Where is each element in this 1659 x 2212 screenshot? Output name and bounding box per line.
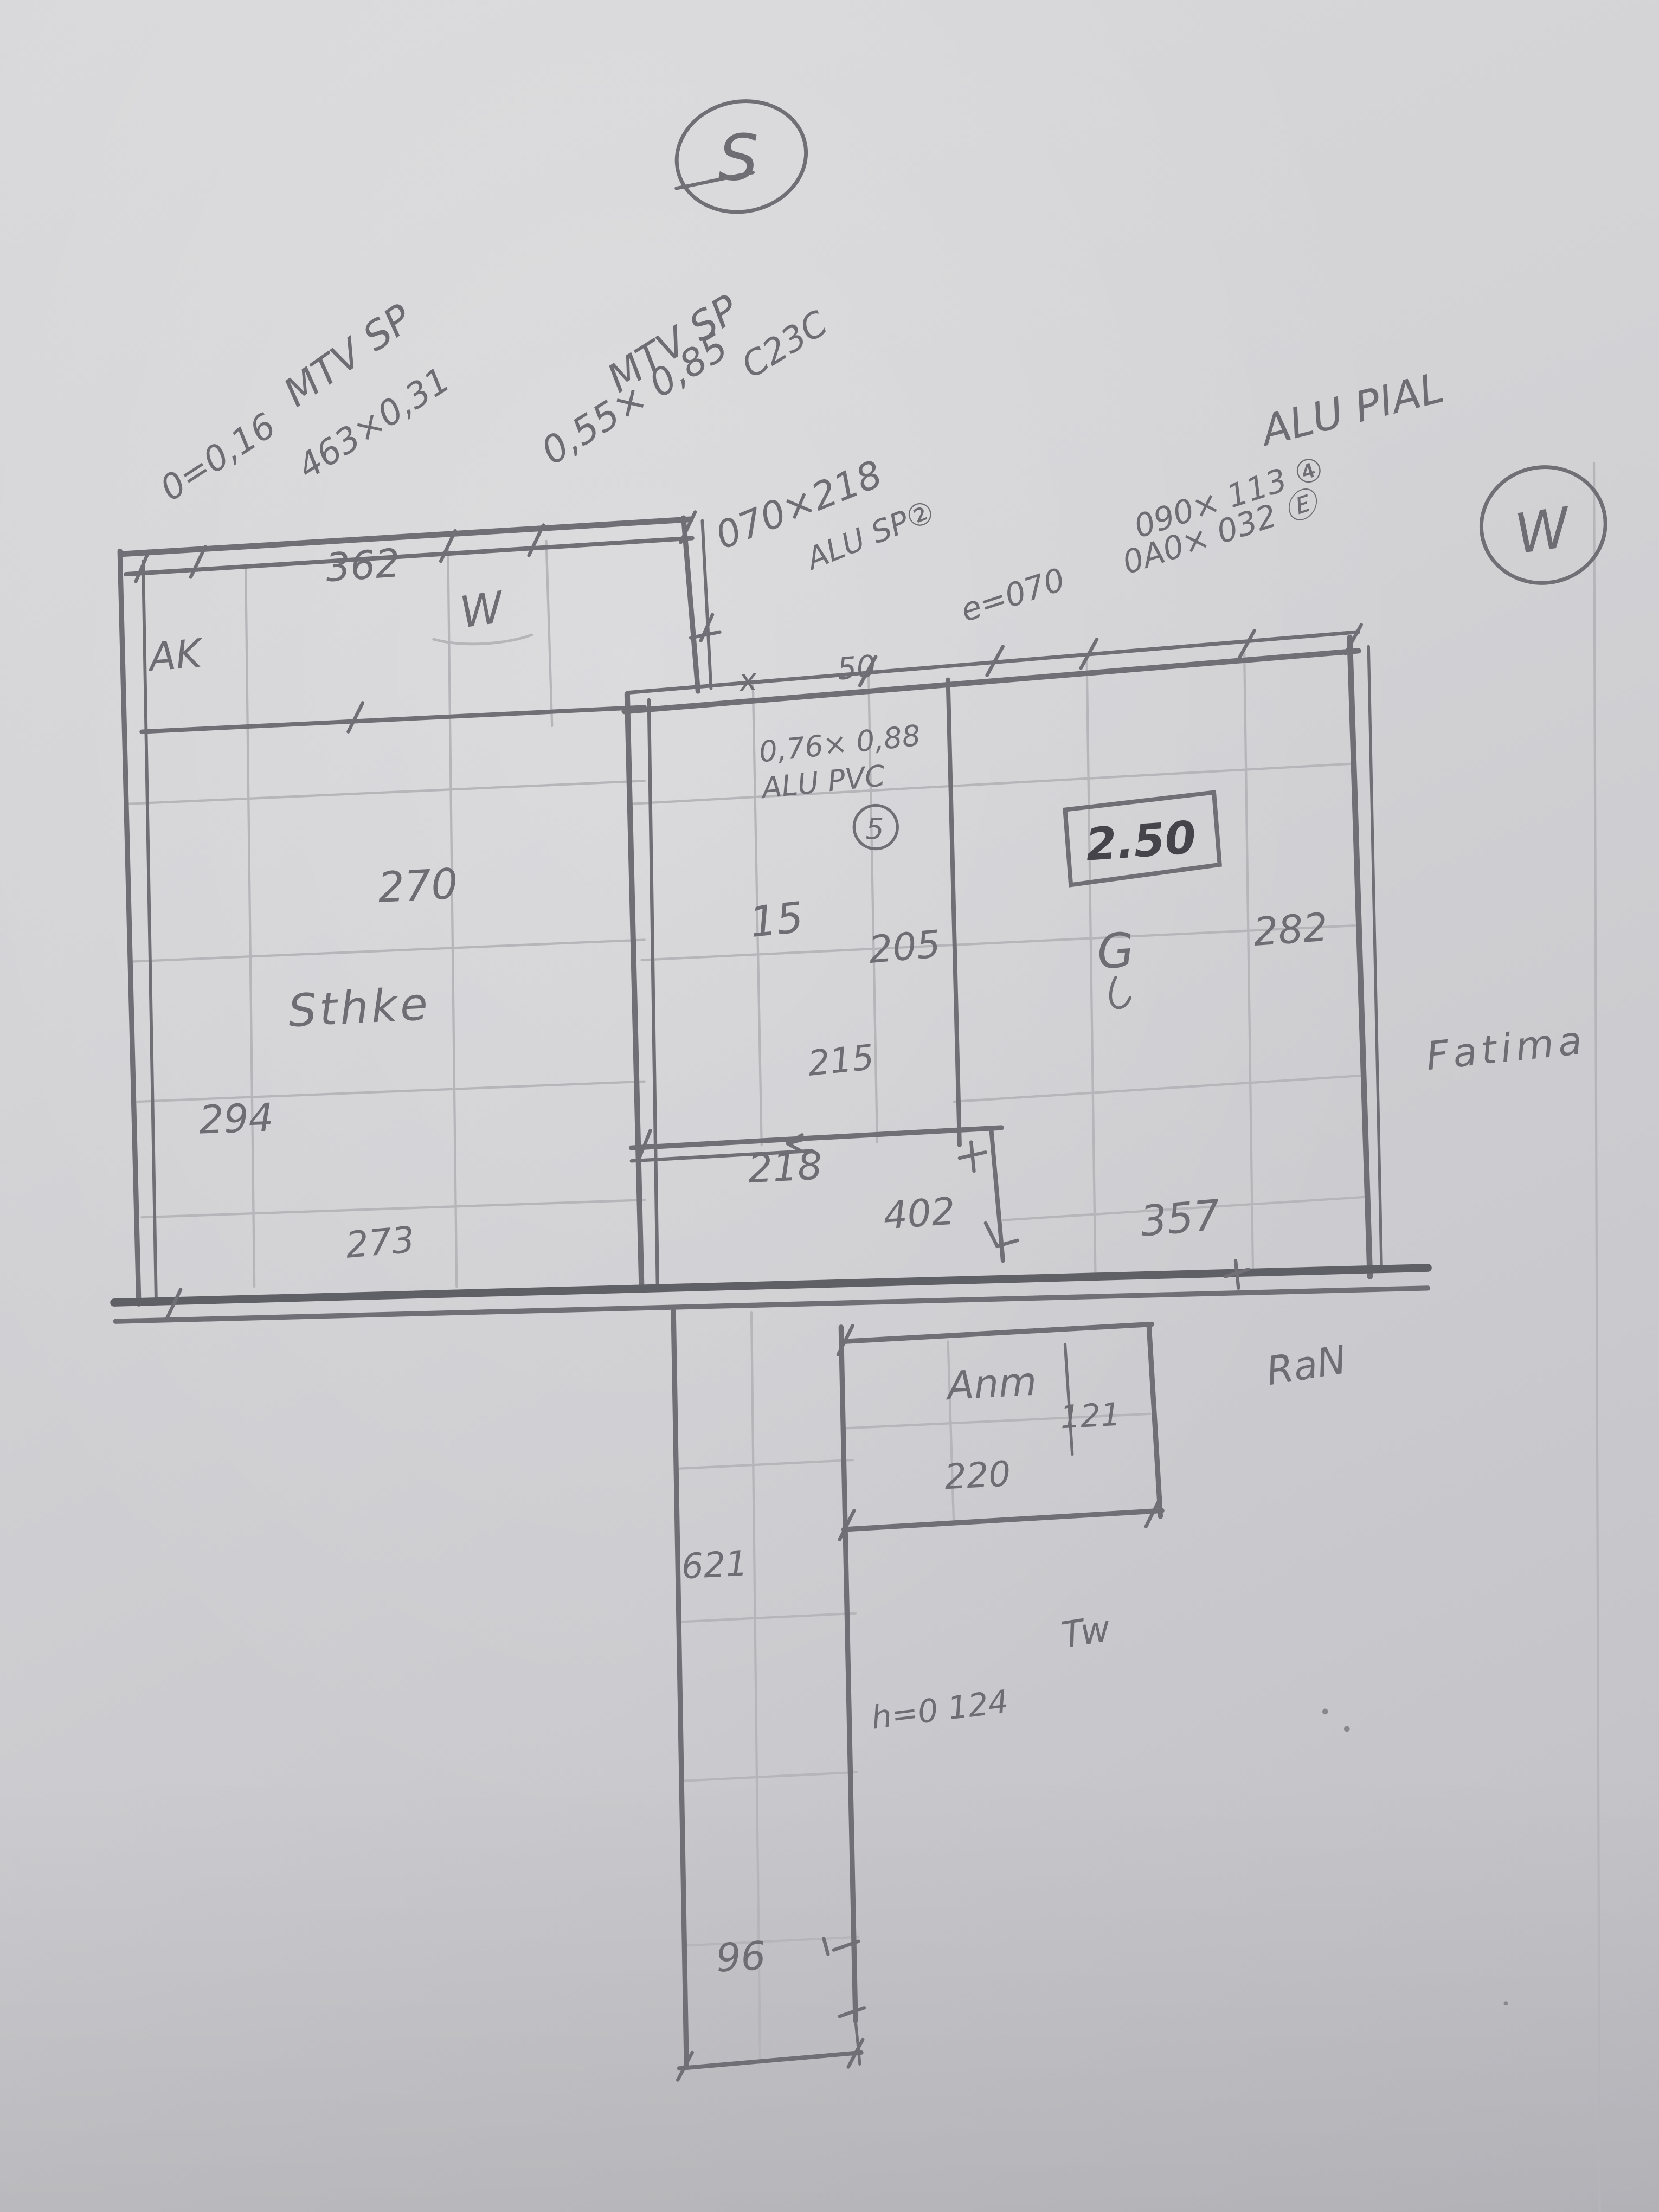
paper-specks	[1322, 1709, 1508, 2006]
dim-621: 621	[680, 1544, 749, 1587]
dim-121: 121	[1059, 1396, 1122, 1436]
dim-205: 205	[867, 923, 942, 972]
dim-402: 402	[882, 1189, 957, 1238]
height-value: 2.50	[1084, 812, 1198, 871]
name-ran: RaN	[1263, 1336, 1349, 1394]
dim-273: 273	[344, 1218, 416, 1266]
spec5-number: 5	[866, 812, 884, 846]
compass-south: S	[666, 89, 816, 224]
room-anm-label: Anm	[944, 1359, 1038, 1409]
dim-362: 362	[324, 540, 402, 590]
dim-220: 220	[943, 1454, 1012, 1497]
floorplan-sketch: S W MTV SP 0=0,16 463×0,31 MTV SP C23C 0…	[0, 0, 1659, 2212]
mark-x: x	[736, 662, 759, 699]
name-fatima: Fatima	[1424, 1017, 1589, 1079]
photo-of-sketch: S W MTV SP 0=0,16 463×0,31 MTV SP C23C 0…	[0, 0, 1659, 2212]
mark-50: 50	[836, 649, 878, 687]
room-ak-label: AK	[145, 630, 205, 680]
dim-357: 357	[1139, 1191, 1223, 1246]
spec4-title: ALU PIAL	[1254, 363, 1449, 456]
compass-south-letter: S	[718, 120, 758, 195]
dim-96: 96	[715, 1933, 767, 1981]
height-box: 2.50	[1065, 793, 1219, 885]
dim-270: 270	[377, 860, 459, 913]
spec1-line1: 0=0,16	[153, 406, 283, 509]
mark-g: G	[1095, 922, 1136, 980]
dim-282: 282	[1252, 904, 1329, 955]
dim-294: 294	[198, 1095, 274, 1143]
dim-15: 15	[748, 893, 806, 947]
note-h0-124: h=0 124	[869, 1683, 1011, 1736]
spec2-code: C23C	[735, 303, 834, 386]
compass-west-letter: W	[1511, 495, 1576, 566]
spec3-note: e=070	[956, 561, 1069, 629]
dim-215: 215	[806, 1038, 876, 1084]
mark-tw: Tw	[1058, 1607, 1113, 1656]
spec5-size: 0,76× 0,88	[757, 719, 922, 769]
dim-218: 218	[747, 1142, 824, 1192]
w-note: W	[457, 582, 508, 638]
room-sthke-label: Sthke	[287, 978, 432, 1038]
